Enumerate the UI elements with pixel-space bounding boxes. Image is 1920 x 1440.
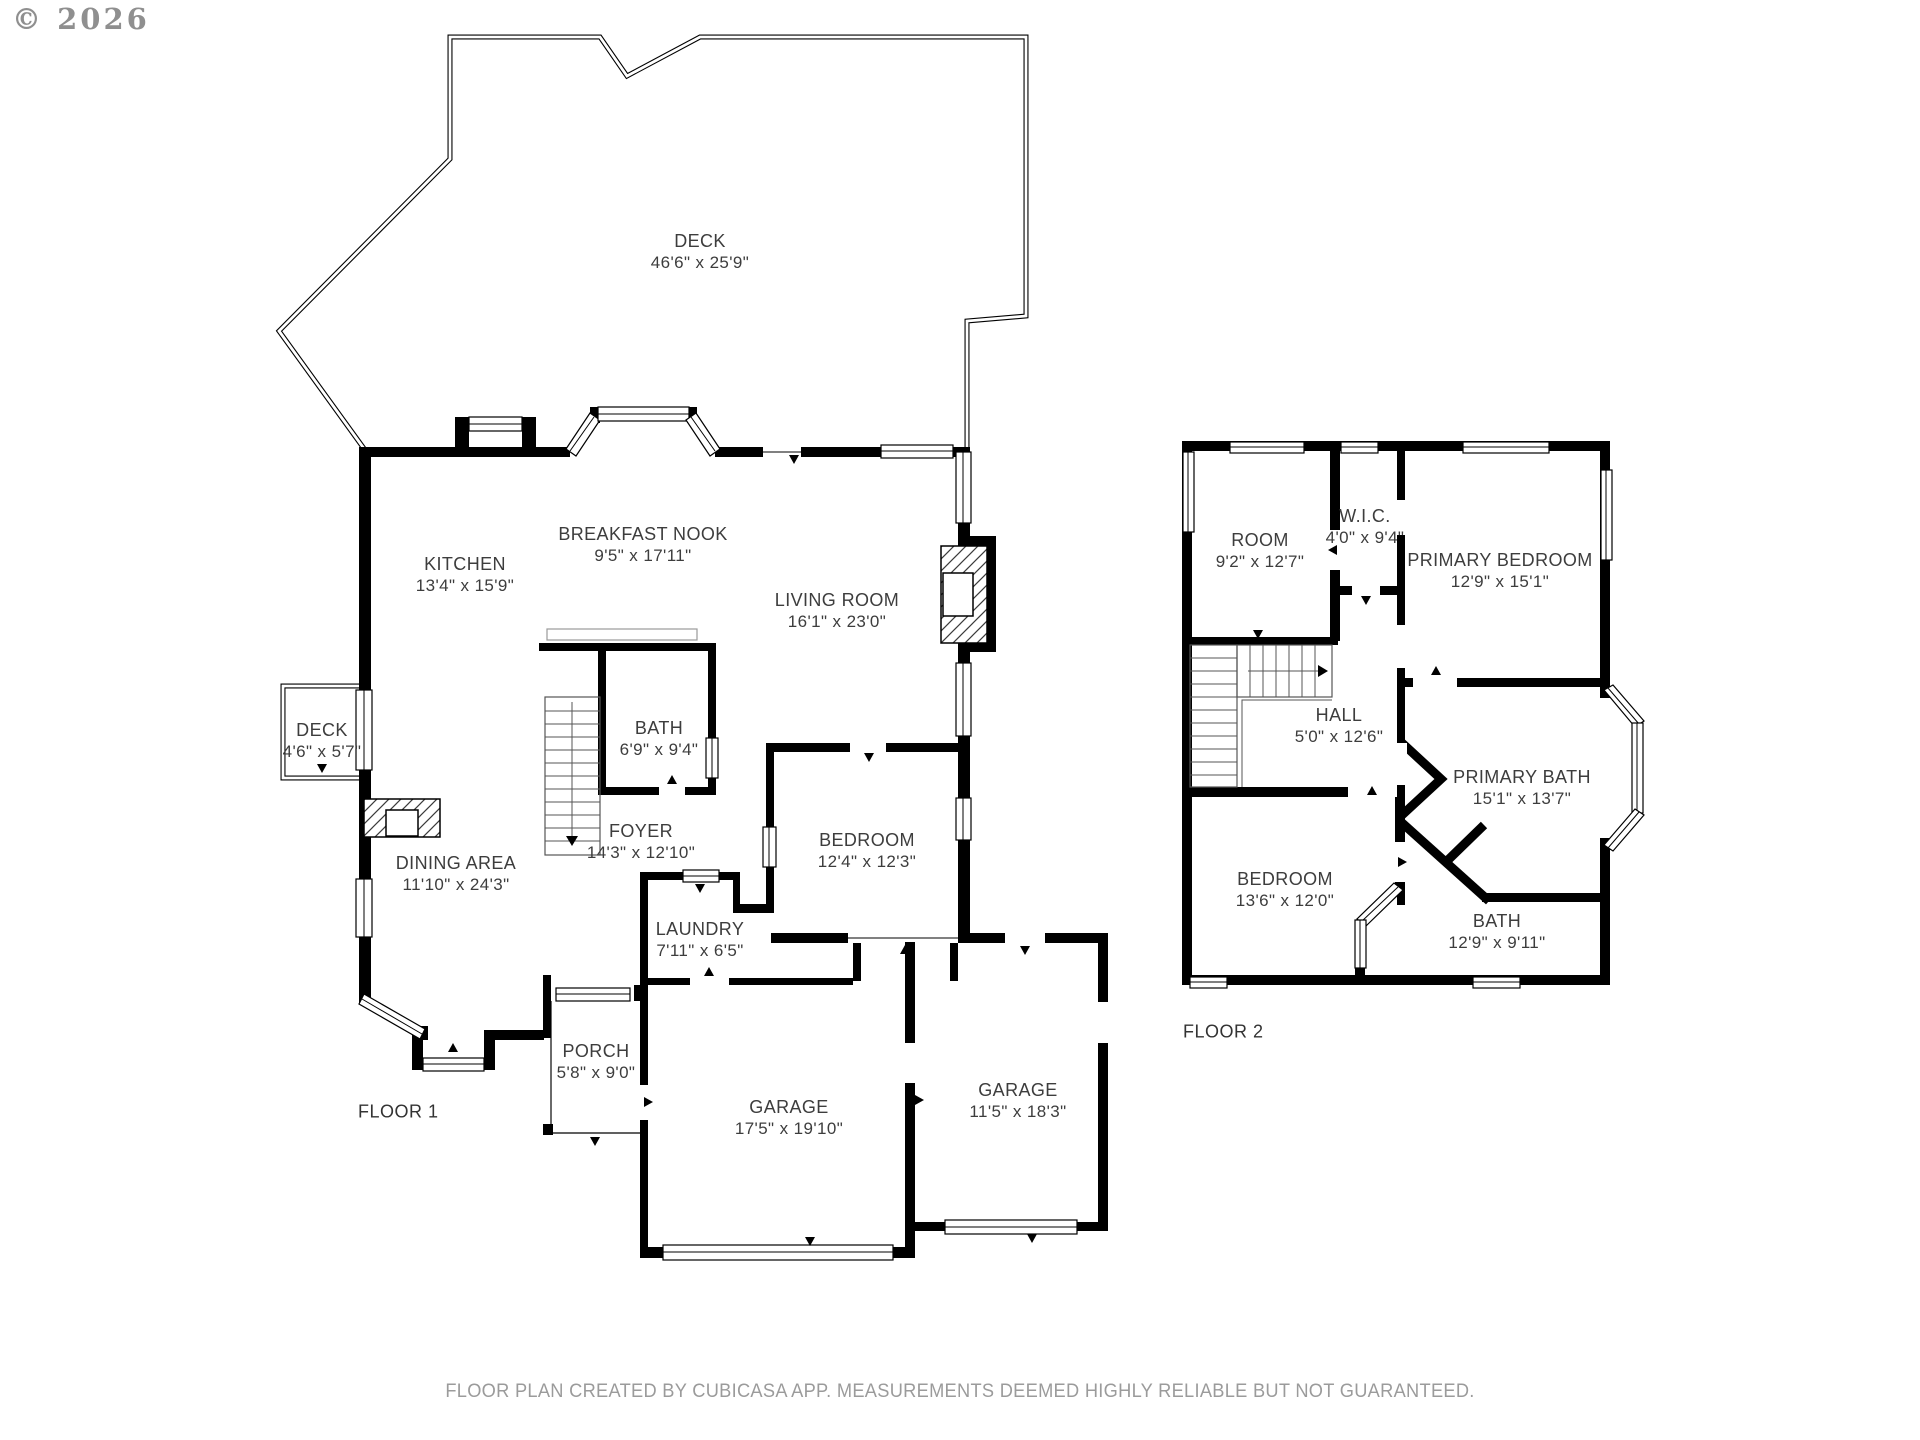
- room-dims: 13'6" x 12'0": [1236, 890, 1334, 912]
- room-dims: 46'6" x 25'9": [651, 252, 749, 274]
- room-name: BEDROOM: [1236, 868, 1334, 890]
- room-dims: 9'2" x 12'7": [1216, 551, 1305, 573]
- room-label-primary-bedroom: PRIMARY BEDROOM 12'9" x 15'1": [1407, 549, 1592, 593]
- room-name: DINING AREA: [396, 852, 516, 874]
- copyright-text: © 2026: [12, 2, 150, 36]
- room-label-hall: HALL 5'0" x 12'6": [1295, 704, 1384, 748]
- room-name: BATH: [1448, 910, 1545, 932]
- room-name: LIVING ROOM: [775, 589, 899, 611]
- room-name: DECK: [283, 719, 362, 741]
- room-name: ROOM: [1216, 529, 1305, 551]
- room-name: BATH: [620, 717, 699, 739]
- room-label-foyer: FOYER 14'3" x 12'10": [587, 820, 695, 864]
- room-dims: 4'0" x 9'4": [1326, 527, 1405, 549]
- room-name: BEDROOM: [818, 829, 916, 851]
- room-name: W.I.C.: [1326, 505, 1405, 527]
- room-name: GARAGE: [969, 1079, 1066, 1101]
- living-room-fireplace: [941, 536, 996, 652]
- kitchen-counter: [547, 629, 697, 640]
- room-label-primary-bath: PRIMARY BATH 15'1" x 13'7": [1453, 766, 1591, 810]
- room-dims: 5'8" x 9'0": [557, 1062, 636, 1084]
- room-label-garage1: GARAGE 17'5" x 19'10": [735, 1096, 843, 1140]
- room-dims: 16'1" x 23'0": [775, 611, 899, 633]
- room-dims: 14'3" x 12'10": [587, 842, 695, 864]
- room-label-bedroom1: BEDROOM 12'4" x 12'3": [818, 829, 916, 873]
- room-name: FOYER: [587, 820, 695, 842]
- room-label-wic: W.I.C. 4'0" x 9'4": [1326, 505, 1405, 549]
- room-name: PRIMARY BEDROOM: [1407, 549, 1592, 571]
- room-name: HALL: [1295, 704, 1384, 726]
- room-name: KITCHEN: [416, 553, 514, 575]
- room-label-bath2: BATH 12'9" x 9'11": [1448, 910, 1545, 954]
- room-label-deck-large: DECK 46'6" x 25'9": [651, 230, 749, 274]
- floor1-label: FLOOR 1: [358, 1102, 439, 1123]
- room-dims: 5'0" x 12'6": [1295, 726, 1384, 748]
- room-label-bath1: BATH 6'9" x 9'4": [620, 717, 699, 761]
- room-dims: 12'9" x 15'1": [1407, 571, 1592, 593]
- room-dims: 11'10" x 24'3": [396, 874, 516, 896]
- room-dims: 6'9" x 9'4": [620, 739, 699, 761]
- room-label-dining-area: DINING AREA 11'10" x 24'3": [396, 852, 516, 896]
- room-label-room2: ROOM 9'2" x 12'7": [1216, 529, 1305, 573]
- room-label-living-room: LIVING ROOM 16'1" x 23'0": [775, 589, 899, 633]
- room-dims: 17'5" x 19'10": [735, 1118, 843, 1140]
- room-dims: 12'4" x 12'3": [818, 851, 916, 873]
- room-name: LAUNDRY: [656, 918, 745, 940]
- room-label-laundry: LAUNDRY 7'11" x 6'5": [656, 918, 745, 962]
- room-name: BREAKFAST NOOK: [558, 523, 727, 545]
- room-label-breakfast-nook: BREAKFAST NOOK 9'5" x 17'11": [558, 523, 727, 567]
- room-dims: 9'5" x 17'11": [558, 545, 727, 567]
- room-label-bedroom2: BEDROOM 13'6" x 12'0": [1236, 868, 1334, 912]
- room-dims: 13'4" x 15'9": [416, 575, 514, 597]
- room-name: GARAGE: [735, 1096, 843, 1118]
- room-dims: 15'1" x 13'7": [1453, 788, 1591, 810]
- room-dims: 4'6" x 5'7": [283, 741, 362, 763]
- room-label-porch: PORCH 5'8" x 9'0": [557, 1040, 636, 1084]
- room-label-garage2: GARAGE 11'5" x 18'3": [969, 1079, 1066, 1123]
- room-dims: 7'11" x 6'5": [656, 940, 745, 962]
- room-label-kitchen: KITCHEN 13'4" x 15'9": [416, 553, 514, 597]
- room-dims: 11'5" x 18'3": [969, 1101, 1066, 1123]
- room-label-deck-small: DECK 4'6" x 5'7": [283, 719, 362, 763]
- footer-disclaimer: FLOOR PLAN CREATED BY CUBICASA APP. MEAS…: [445, 1381, 1474, 1403]
- room-name: PRIMARY BATH: [1453, 766, 1591, 788]
- floor2-label: FLOOR 2: [1183, 1022, 1264, 1043]
- floor1-windows-doors: [356, 407, 1110, 1260]
- floor1-walls: [359, 407, 1108, 1258]
- room-dims: 12'9" x 9'11": [1448, 932, 1545, 954]
- room-name: DECK: [651, 230, 749, 252]
- floorplan-page: © 2026 DECK 46'6" x 25'9" KITCHEN 13'4" …: [0, 0, 1920, 1440]
- room-name: PORCH: [557, 1040, 636, 1062]
- dining-area-fireplace: [364, 799, 440, 837]
